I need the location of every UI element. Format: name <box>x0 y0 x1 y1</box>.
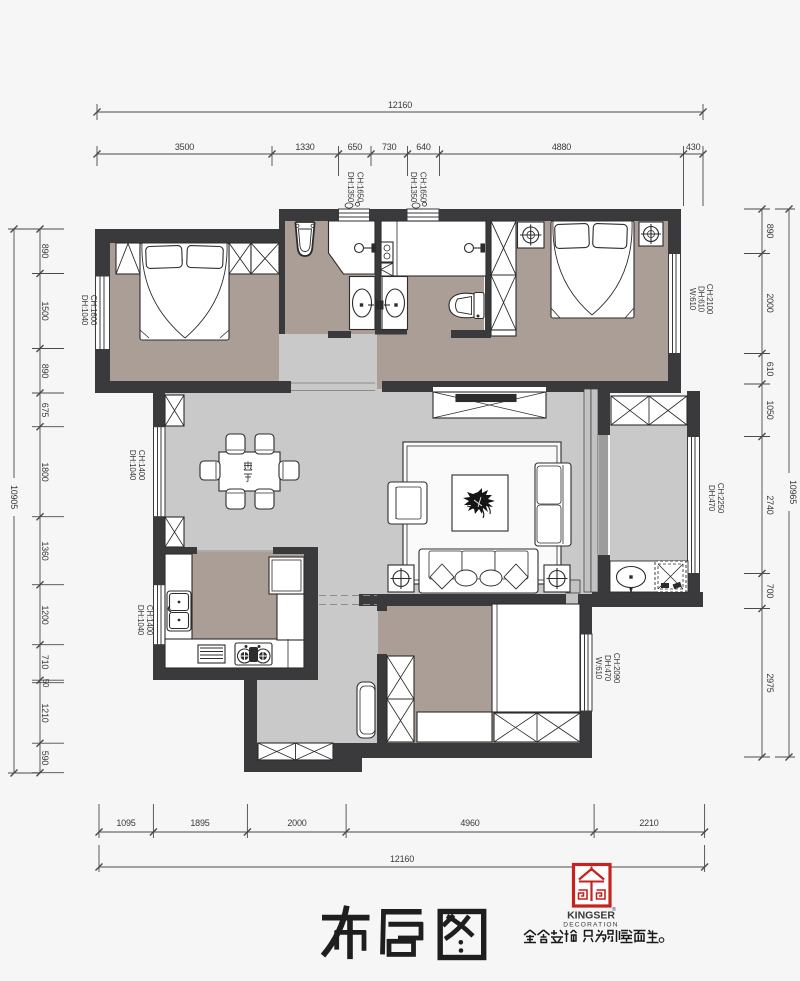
svg-text:W:610: W:610 <box>688 288 697 311</box>
svg-text:890: 890 <box>40 364 50 379</box>
svg-text:DH:1350: DH:1350 <box>346 172 355 203</box>
svg-text:2975: 2975 <box>765 673 775 692</box>
svg-text:1500: 1500 <box>40 301 50 320</box>
svg-text:1360: 1360 <box>40 541 50 560</box>
svg-text:1800: 1800 <box>40 462 50 481</box>
svg-text:2740: 2740 <box>765 495 775 514</box>
svg-text:DH:1350: DH:1350 <box>409 172 418 203</box>
svg-text:650: 650 <box>348 142 363 152</box>
svg-text:12160: 12160 <box>390 854 414 864</box>
svg-text:2000: 2000 <box>287 818 306 828</box>
svg-text:DH:470: DH:470 <box>707 485 716 512</box>
svg-text:CH:1600: CH:1600 <box>89 295 98 326</box>
svg-text:CH:1650: CH:1650 <box>356 172 365 203</box>
svg-text:1050: 1050 <box>765 400 775 419</box>
svg-text:CH:1400: CH:1400 <box>137 450 146 481</box>
svg-text:10905: 10905 <box>9 485 19 509</box>
svg-text:2210: 2210 <box>639 818 658 828</box>
svg-text:50: 50 <box>41 679 50 688</box>
svg-text:DH:1040: DH:1040 <box>128 450 137 481</box>
svg-text:710: 710 <box>40 655 50 670</box>
svg-text:610: 610 <box>765 362 775 377</box>
svg-text:KINGSER: KINGSER <box>567 910 615 922</box>
svg-text:CH:1650: CH:1650 <box>419 172 428 203</box>
svg-text:CH:2090: CH:2090 <box>612 653 621 684</box>
svg-text:4880: 4880 <box>552 142 571 152</box>
svg-text:1210: 1210 <box>40 703 50 722</box>
svg-text:DECORATION: DECORATION <box>563 922 618 929</box>
svg-text:590: 590 <box>40 751 50 766</box>
svg-text:DH:1040: DH:1040 <box>80 295 89 326</box>
svg-text:1895: 1895 <box>190 818 209 828</box>
svg-text:CH:2250: CH:2250 <box>716 483 725 514</box>
svg-text:430: 430 <box>686 142 701 152</box>
svg-text:675: 675 <box>40 403 50 418</box>
svg-text:890: 890 <box>40 244 50 259</box>
svg-text:10965: 10965 <box>788 480 798 504</box>
svg-text:700: 700 <box>765 584 775 599</box>
svg-text:730: 730 <box>382 142 397 152</box>
svg-text:®: ® <box>612 906 616 913</box>
svg-text:2000: 2000 <box>765 293 775 312</box>
svg-text:640: 640 <box>416 142 431 152</box>
svg-text:W:610: W:610 <box>594 657 603 680</box>
svg-text:4960: 4960 <box>460 818 479 828</box>
svg-text:12160: 12160 <box>388 100 412 110</box>
svg-text:3500: 3500 <box>175 142 194 152</box>
svg-text:890: 890 <box>765 224 775 239</box>
svg-text:DH:470: DH:470 <box>603 655 612 682</box>
svg-text:DH:1040: DH:1040 <box>136 605 145 636</box>
svg-text:1200: 1200 <box>40 605 50 624</box>
svg-text:CH:1400: CH:1400 <box>145 605 154 636</box>
svg-text:1095: 1095 <box>116 818 135 828</box>
svg-text:1330: 1330 <box>295 142 314 152</box>
